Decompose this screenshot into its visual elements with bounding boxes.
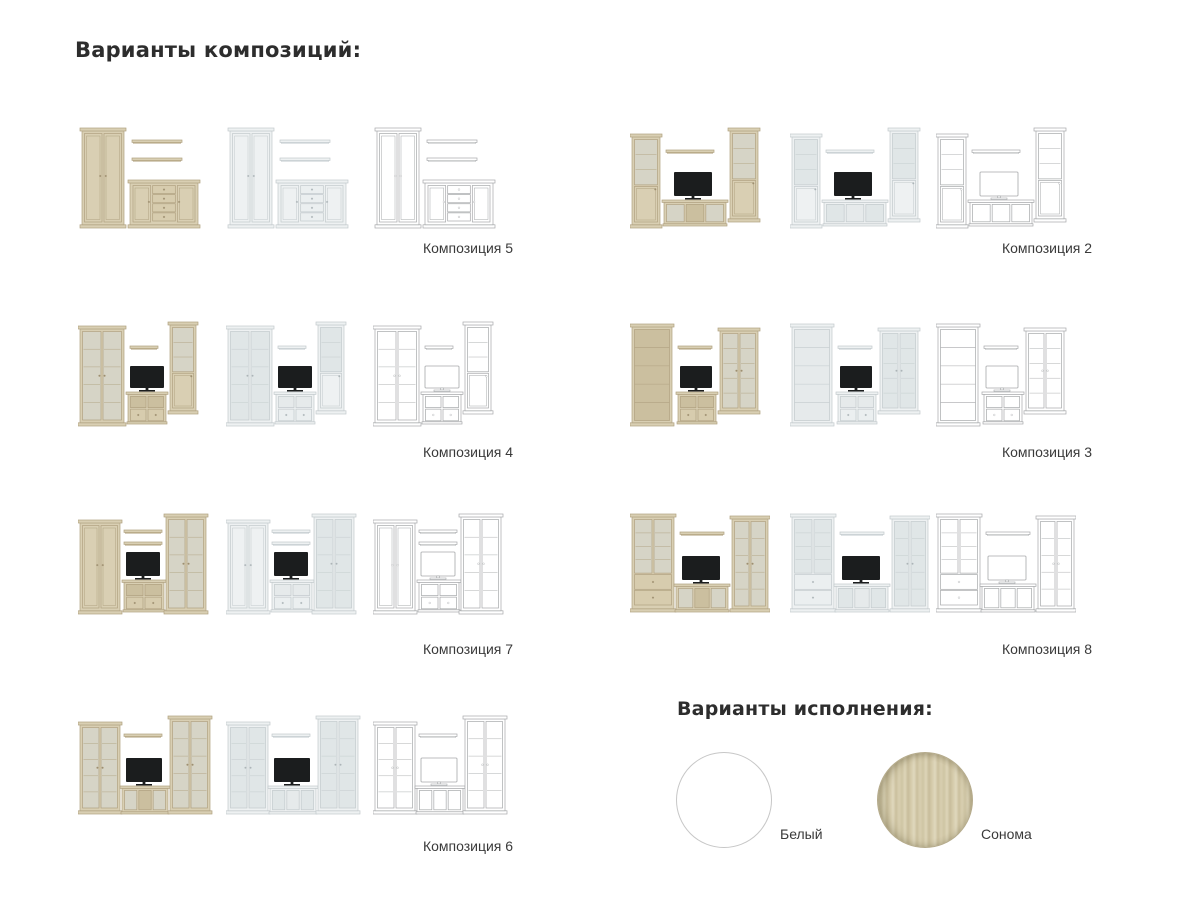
composition-group-4: Композиция 4 bbox=[78, 320, 558, 470]
composition-7-label: Композиция 7 bbox=[393, 641, 543, 657]
composition-5-label: Композиция 5 bbox=[393, 240, 543, 256]
composition-3-sonoma-render bbox=[630, 320, 770, 434]
composition-group-7: Композиция 7 bbox=[78, 508, 558, 658]
composition-6-wireframe-drawing bbox=[373, 708, 513, 822]
composition-3-wireframe-drawing bbox=[936, 320, 1076, 434]
composition-8-wireframe-drawing bbox=[936, 508, 1076, 622]
sonoma-finish-label: Сонома bbox=[981, 826, 1032, 848]
composition-6-white-render bbox=[226, 708, 366, 822]
composition-group-2: Композиция 2 bbox=[630, 122, 1110, 272]
composition-2-sonoma-render bbox=[630, 122, 770, 236]
white-finish-swatch bbox=[676, 752, 772, 848]
composition-5-sonoma-render bbox=[78, 122, 218, 236]
composition-2-white-render bbox=[790, 122, 930, 236]
finish-option-white: Белый bbox=[676, 752, 823, 848]
composition-4-white-render bbox=[226, 320, 366, 434]
composition-8-white-render bbox=[790, 508, 930, 622]
white-finish-label: Белый bbox=[780, 826, 823, 848]
composition-group-8: Композиция 8 bbox=[630, 508, 1110, 658]
composition-7-sonoma-render bbox=[78, 508, 218, 622]
catalog-page: Варианты композиций: Композиция 5 Композ… bbox=[0, 0, 1200, 900]
composition-8-sonoma-render bbox=[630, 508, 770, 622]
finish-option-sonoma: Сонома bbox=[877, 752, 1032, 848]
composition-5-wireframe-drawing bbox=[373, 122, 513, 236]
composition-2-label: Композиция 2 bbox=[972, 240, 1122, 256]
composition-5-white-render bbox=[226, 122, 366, 236]
composition-3-white-render bbox=[790, 320, 930, 434]
composition-6-sonoma-render bbox=[78, 708, 218, 822]
composition-6-label: Композиция 6 bbox=[393, 838, 543, 854]
composition-4-sonoma-render bbox=[78, 320, 218, 434]
composition-2-wireframe-drawing bbox=[936, 122, 1076, 236]
composition-7-white-render bbox=[226, 508, 366, 622]
composition-3-label: Композиция 3 bbox=[972, 444, 1122, 460]
sonoma-finish-swatch bbox=[877, 752, 973, 848]
composition-group-6: Композиция 6 bbox=[78, 708, 558, 858]
composition-8-label: Композиция 8 bbox=[972, 641, 1122, 657]
composition-4-label: Композиция 4 bbox=[393, 444, 543, 460]
finishes-title: Варианты исполнения: bbox=[677, 698, 933, 720]
composition-group-5: Композиция 5 bbox=[78, 122, 558, 272]
composition-group-3: Композиция 3 bbox=[630, 320, 1110, 470]
composition-4-wireframe-drawing bbox=[373, 320, 513, 434]
composition-7-wireframe-drawing bbox=[373, 508, 513, 622]
page-title: Варианты композиций: bbox=[75, 38, 361, 62]
